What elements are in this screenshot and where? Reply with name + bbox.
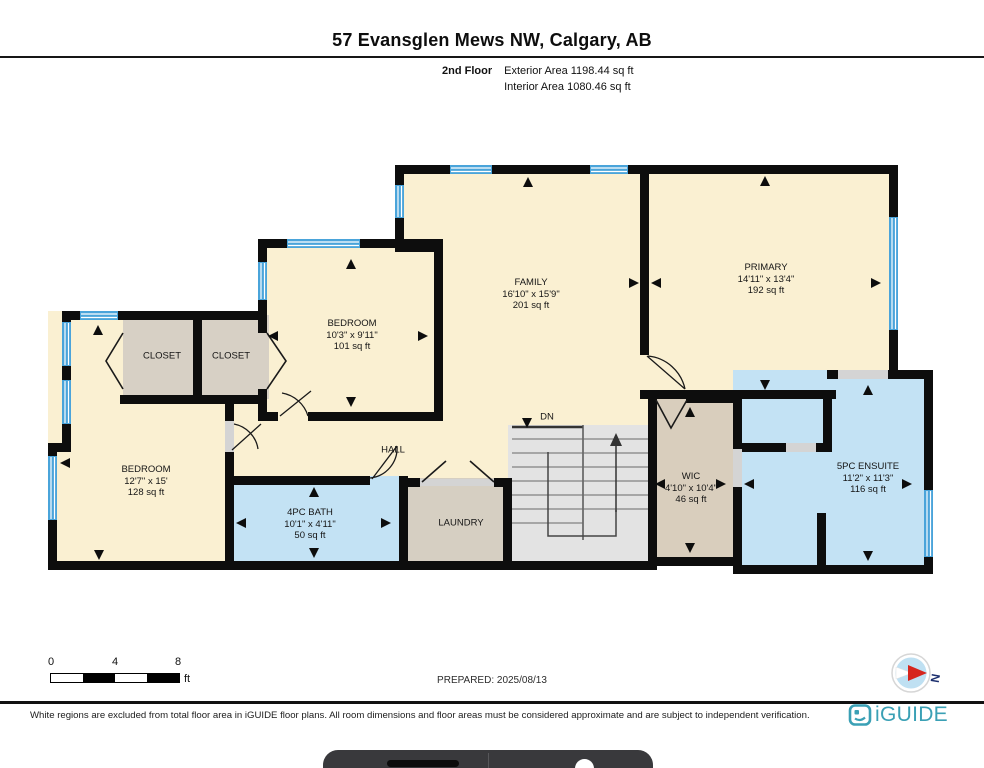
room-label-bedroom-2: BEDROOM 12'7" x 15' 128 sq ft: [121, 464, 170, 499]
room-dims: 11'2" x 11'3": [837, 472, 899, 484]
room-label-ensuite: 5PC ENSUITE 11'2" x 11'3" 116 sq ft: [837, 461, 899, 496]
room-label-hall: HALL: [381, 444, 405, 456]
room-area: 46 sq ft: [665, 494, 717, 506]
footer-divider: [0, 701, 984, 704]
room-name: BEDROOM: [326, 318, 377, 330]
room-area: 128 sq ft: [121, 487, 170, 499]
room-label-bedroom: BEDROOM 10'3" x 9'11" 101 sq ft: [326, 318, 377, 353]
room-area: 116 sq ft: [837, 484, 899, 496]
room-dims: 4'10" x 10'4": [665, 482, 717, 494]
room-name: CLOSET: [143, 350, 181, 362]
drag-handle-pill[interactable]: [387, 760, 459, 767]
floor-plan-graphic: [0, 0, 984, 768]
prepared-date: PREPARED: 2025/08/13: [0, 675, 984, 686]
room-name: HALL: [381, 444, 405, 456]
scale-tick-4: 4: [112, 656, 118, 668]
room-label-wic: WIC 4'10" x 10'4" 46 sq ft: [665, 471, 717, 506]
round-button[interactable]: [575, 759, 594, 768]
room-name: DN: [540, 411, 554, 423]
room-dims: 14'11" x 13'4": [738, 273, 795, 285]
disclaimer-text: White regions are excluded from total fl…: [30, 710, 810, 721]
iguide-logo: iGUIDE: [848, 703, 948, 727]
room-name: FAMILY: [502, 277, 559, 289]
room-fills: [48, 165, 933, 574]
room-dims: 16'10" x 15'9": [502, 288, 559, 300]
room-dims: 10'3" x 9'11": [326, 329, 377, 341]
room-name: 5PC ENSUITE: [837, 461, 899, 473]
room-label-bath: 4PC BATH 10'1" x 4'11" 50 sq ft: [284, 507, 335, 542]
room-name: BEDROOM: [121, 464, 170, 476]
room-dims: 12'7" x 15': [121, 475, 170, 487]
room-name: PRIMARY: [738, 262, 795, 274]
bottom-toolbar: [323, 750, 653, 768]
stairs-dn-label: DN: [540, 411, 554, 423]
room-area: 192 sq ft: [738, 285, 795, 297]
room-name: WIC: [665, 471, 717, 483]
compass-icon: N: [878, 645, 950, 703]
room-area: 101 sq ft: [326, 341, 377, 353]
toolbar-divider: [488, 753, 489, 768]
room-name: LAUNDRY: [438, 517, 483, 529]
room-name: CLOSET: [212, 350, 250, 362]
floor-plan-page: 57 Evansglen Mews NW, Calgary, AB 2nd Fl…: [0, 0, 984, 768]
room-label-family: FAMILY 16'10" x 15'9" 201 sq ft: [502, 277, 559, 312]
room-label-laundry: LAUNDRY: [438, 517, 483, 529]
room-label-primary: PRIMARY 14'11" x 13'4" 192 sq ft: [738, 262, 795, 297]
room-name: 4PC BATH: [284, 507, 335, 519]
room-area: 50 sq ft: [284, 530, 335, 542]
north-label: N: [928, 673, 943, 684]
iguide-logo-icon: [848, 703, 872, 727]
scale-tick-0: 0: [48, 656, 54, 668]
room-dims: 10'1" x 4'11": [284, 518, 335, 530]
room-label-closet-1: CLOSET: [143, 350, 181, 362]
room-area: 201 sq ft: [502, 300, 559, 312]
iguide-logo-text: iGUIDE: [875, 703, 948, 727]
scale-tick-8: 8: [175, 656, 181, 668]
room-label-closet-2: CLOSET: [212, 350, 250, 362]
scale-bar: 0 4 8 ft: [44, 656, 214, 692]
